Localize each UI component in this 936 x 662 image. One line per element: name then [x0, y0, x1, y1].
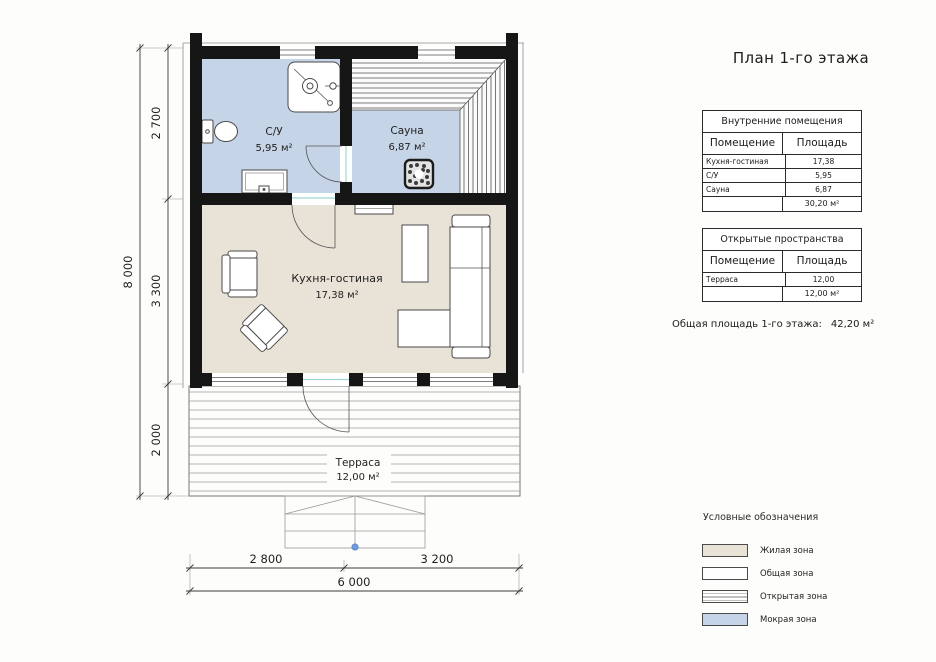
dim-2800: 2 800: [250, 552, 283, 566]
legend-label: Открытая зона: [760, 592, 827, 602]
shower-tray: [288, 62, 340, 112]
table-total-row: 30,20 м²: [703, 197, 861, 211]
area-cell: 6,87: [786, 183, 861, 196]
floor-plan-drawing: С/У 5,95 м² Сауна 6,87 м² Кухня-гостиная…: [0, 0, 665, 662]
legend-item-wet: Мокрая зона: [702, 613, 827, 626]
armchair-1: [222, 251, 257, 297]
col-room-header: Помещение: [703, 251, 783, 272]
dim-3200: 3 200: [421, 552, 454, 566]
open-table-title: Открытые пространства: [703, 229, 861, 251]
room-cell: С/У: [703, 169, 786, 182]
common-zone-swatch: [702, 567, 748, 580]
room-cell: Сауна: [703, 183, 786, 196]
interior-table-title: Внутренние помещения: [703, 111, 861, 133]
col-room-header: Помещение: [703, 133, 783, 154]
area-cell: 12,00: [786, 273, 861, 286]
dim-6000: 6 000: [338, 575, 371, 589]
room-area-terrace: 12,00 м²: [336, 472, 379, 483]
open-zone-swatch: [702, 590, 748, 603]
room-label-bathroom: С/У: [265, 126, 283, 138]
open-table-header: Помещение Площадь: [703, 251, 861, 273]
sauna-stove: [405, 160, 433, 188]
open-spaces-table: Открытые пространства Помещение Площадь …: [702, 228, 862, 302]
col-area-header: Площадь: [783, 251, 861, 272]
door-terrace: [303, 373, 349, 432]
room-area-sauna: 6,87 м²: [389, 142, 426, 153]
total-area-cell: 12,00 м²: [783, 287, 861, 301]
legend: Жилая зона Общая зона Открытая зона Мокр…: [702, 544, 827, 636]
legend-item-living: Жилая зона: [702, 544, 827, 557]
legend-item-open: Открытая зона: [702, 590, 827, 603]
window-bottom-left: [212, 373, 287, 386]
total-area-cell: 30,20 м²: [783, 197, 861, 211]
summary-value: 42,20 м²: [831, 319, 874, 330]
legend-item-common: Общая зона: [702, 567, 827, 580]
col-area-header: Площадь: [783, 133, 861, 154]
area-cell: 5,95: [786, 169, 861, 182]
washbasin: [242, 170, 287, 193]
table-total-row: 12,00 м²: [703, 287, 861, 301]
living-zone-swatch: [702, 544, 748, 557]
room-area-kitchen-living: 17,38 м²: [315, 290, 358, 301]
table-row: Сауна 6,87: [703, 183, 861, 197]
dim-8000: 8 000: [121, 256, 135, 289]
area-cell: 17,38: [786, 155, 861, 168]
dim-3300: 3 300: [149, 275, 163, 308]
window-bottom-right: [430, 373, 493, 386]
table-row: С/У 5,95: [703, 169, 861, 183]
entry-point-dot: [352, 544, 358, 550]
wet-zone-swatch: [702, 613, 748, 626]
window-top-bathroom: [280, 46, 315, 59]
room-label-terrace: Терраса: [335, 457, 381, 469]
interior-table-header: Помещение Площадь: [703, 133, 861, 155]
legend-label: Общая зона: [760, 569, 813, 579]
room-cell: Кухня-гостиная: [703, 155, 786, 168]
toilet: [202, 120, 238, 143]
dim-2000: 2 000: [149, 424, 163, 457]
room-cell: Терраса: [703, 273, 786, 286]
interior-rooms-table: Внутренние помещения Помещение Площадь К…: [702, 110, 862, 212]
table-row: Кухня-гостиная 17,38: [703, 155, 861, 169]
legend-label: Жилая зона: [760, 546, 814, 556]
floor-plan-sheet: С/У 5,95 м² Сауна 6,87 м² Кухня-гостиная…: [0, 0, 936, 662]
dim-2700: 2 700: [149, 107, 163, 140]
kitchen-table: [402, 225, 428, 282]
table-row: Терраса 12,00: [703, 273, 861, 287]
legend-label: Мокрая зона: [760, 615, 817, 625]
room-label-sauna: Сауна: [390, 125, 423, 137]
window-top-sauna: [418, 46, 455, 59]
room-label-kitchen-living: Кухня-гостиная: [291, 272, 382, 285]
room-area-bathroom: 5,95 м²: [256, 143, 293, 154]
summary-label: Общая площадь 1-го этажа:: [672, 319, 822, 330]
legend-title: Условные обозначения: [703, 512, 818, 523]
page-title: План 1-го этажа: [700, 49, 902, 67]
total-area-summary: Общая площадь 1-го этажа:42,20 м²: [672, 319, 874, 330]
window-bottom-middle: [363, 373, 417, 386]
entrance-steps: [285, 496, 425, 548]
